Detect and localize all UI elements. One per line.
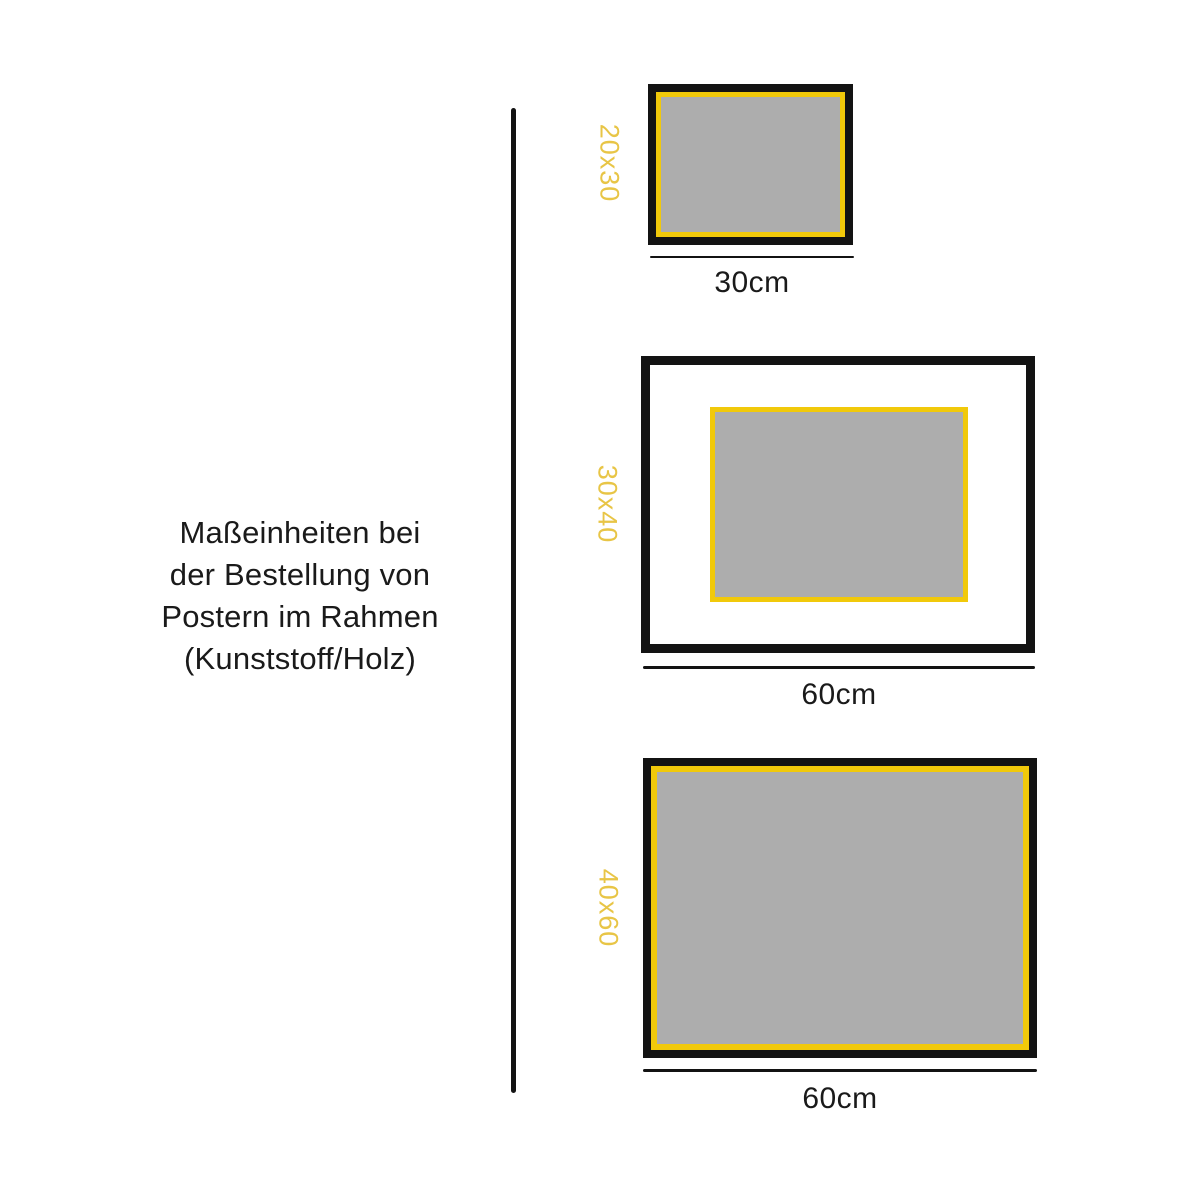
poster-frame-30x40 — [641, 356, 1035, 653]
width-measure-label-30x40: 60cm — [643, 678, 1035, 712]
poster-size-diagram: Maßeinheiten bei der Bestellung von Post… — [0, 0, 1200, 1200]
diagram-title: Maßeinheiten bei der Bestellung von Post… — [130, 512, 470, 680]
size-label-30x40: 30x40 — [592, 465, 623, 544]
width-measure-label-40x60: 60cm — [643, 1082, 1037, 1116]
width-measure-line-20x30 — [650, 256, 854, 258]
poster-area-20x30 — [656, 92, 845, 237]
poster-area-40x60 — [651, 766, 1029, 1050]
poster-frame-20x30 — [648, 84, 853, 245]
width-measure-line-40x60 — [643, 1069, 1037, 1072]
poster-frame-40x60 — [643, 758, 1037, 1058]
size-label-20x30: 20x30 — [594, 124, 625, 203]
width-measure-label-20x30: 30cm — [650, 266, 854, 300]
size-label-40x60: 40x60 — [593, 869, 624, 948]
poster-area-30x40 — [710, 407, 968, 602]
vertical-divider-line — [511, 108, 516, 1093]
width-measure-line-30x40 — [643, 666, 1035, 669]
